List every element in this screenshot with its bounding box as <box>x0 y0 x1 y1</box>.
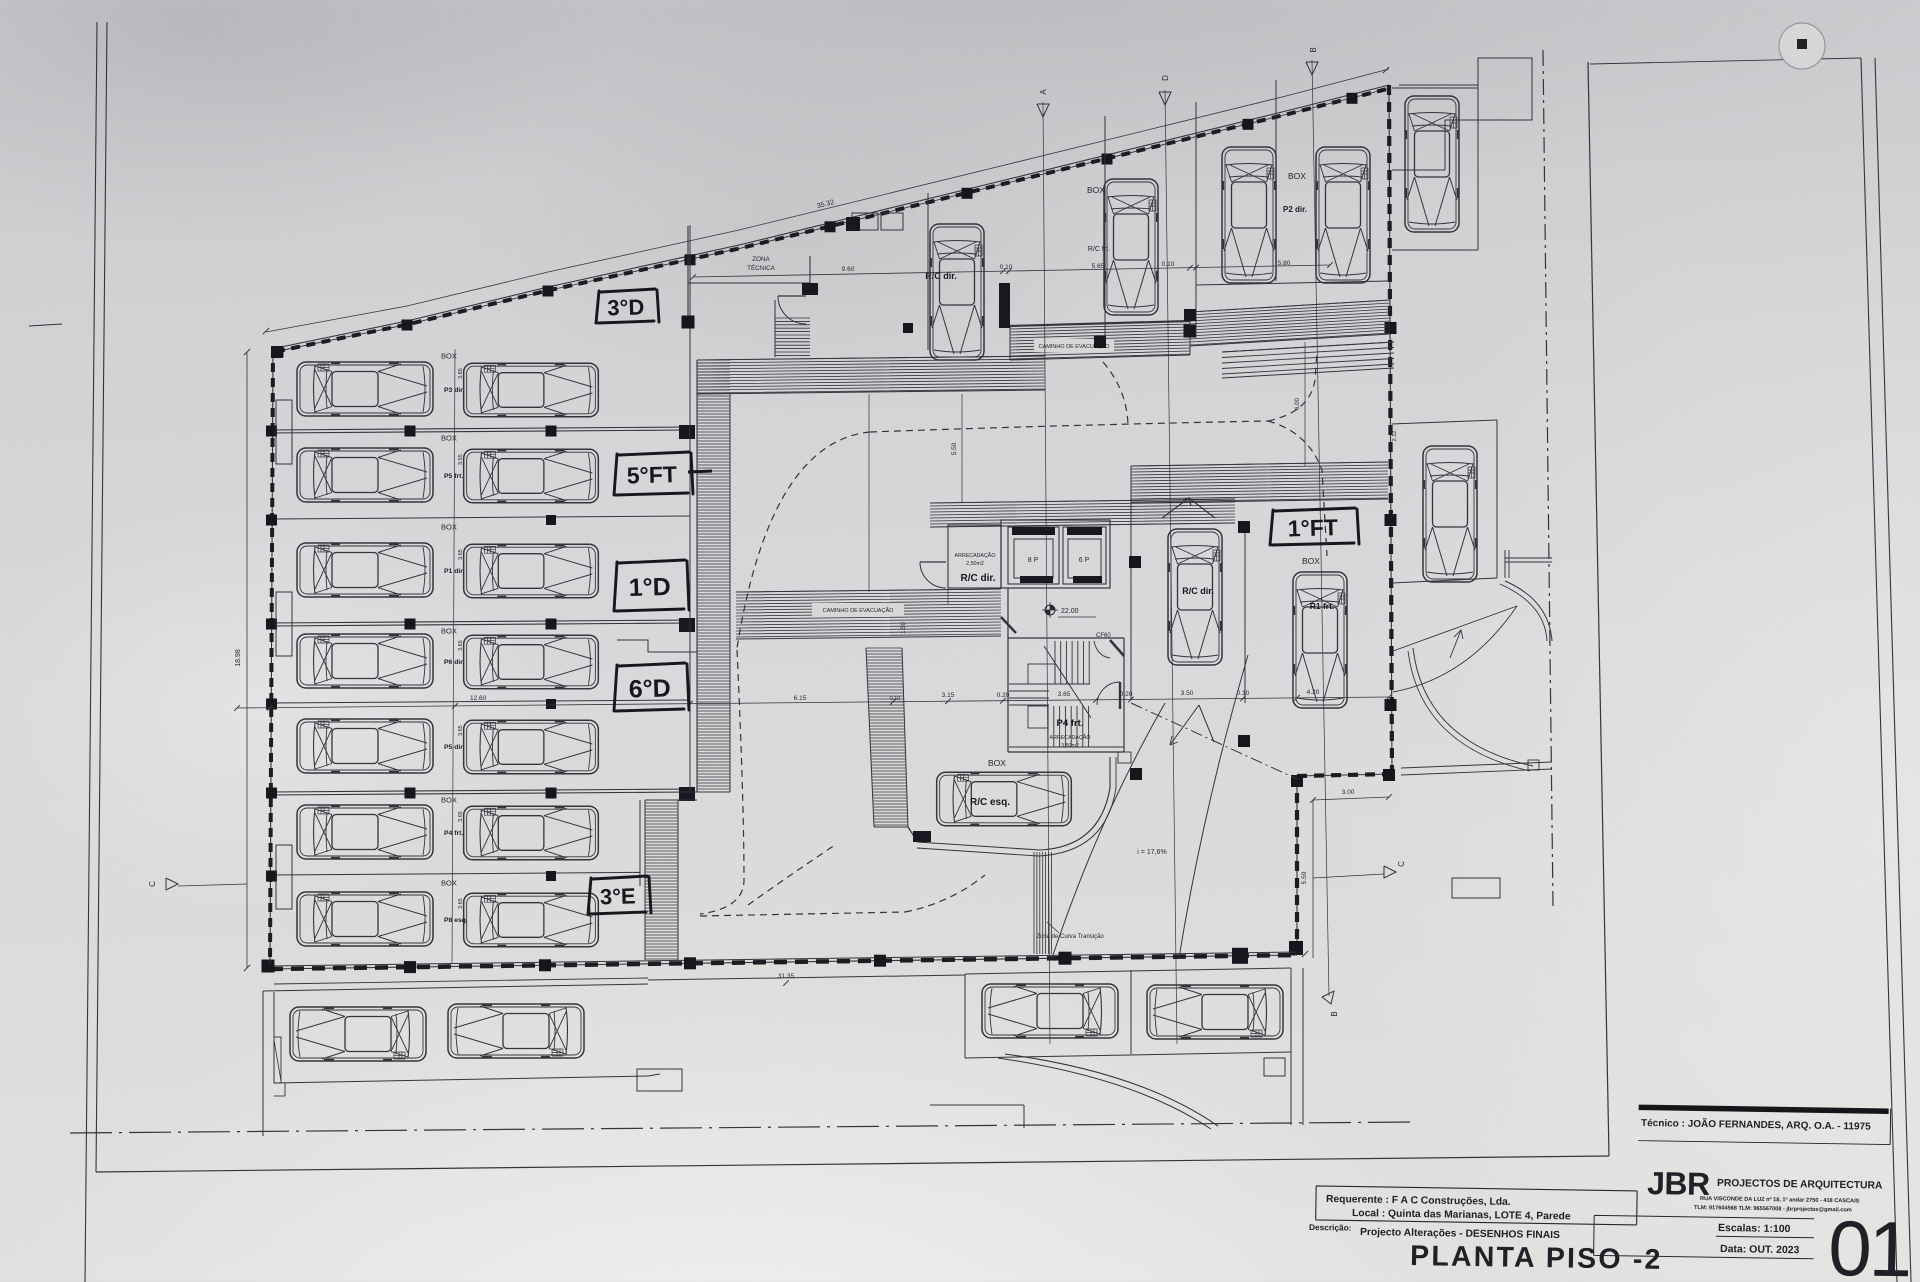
svg-text:B: B <box>1309 47 1318 52</box>
svg-text:2,50m2: 2,50m2 <box>966 561 984 567</box>
svg-text:R/C esq.: R/C esq. <box>970 797 1010 808</box>
svg-text:BOX: BOX <box>1087 185 1105 195</box>
svg-text:3.65: 3.65 <box>458 898 464 909</box>
svg-text:1°FT: 1°FT <box>1287 514 1338 541</box>
svg-text:R1 frt.: R1 frt. <box>1310 601 1335 611</box>
svg-text:ARRECADAÇÃO: ARRECADAÇÃO <box>1050 734 1091 741</box>
svg-text:i = 17,6%: i = 17,6% <box>1137 849 1166 856</box>
svg-text:BOX: BOX <box>441 523 457 532</box>
svg-text:22.00: 22.00 <box>1061 608 1079 615</box>
svg-text:CAMINHO DE EVACUAÇÃO: CAMINHO DE EVACUAÇÃO <box>823 607 895 614</box>
svg-text:5.50: 5.50 <box>951 442 958 455</box>
svg-text:6.00: 6.00 <box>1295 398 1301 410</box>
svg-text:3.65: 3.65 <box>458 725 464 736</box>
svg-text:8 P: 8 P <box>1028 557 1039 564</box>
svg-text:P4 frt.: P4 frt. <box>444 830 463 837</box>
svg-text:3.65: 3.65 <box>458 454 464 465</box>
svg-text:PLANTA PISO -2: PLANTA PISO -2 <box>1410 1240 1663 1276</box>
svg-text:31.35: 31.35 <box>778 973 795 980</box>
svg-text:P8 esq.: P8 esq. <box>444 917 468 924</box>
svg-text:3.65: 3.65 <box>458 640 464 651</box>
svg-text:A: A <box>1039 89 1048 95</box>
svg-text:BOX: BOX <box>1288 171 1306 181</box>
svg-text:Zona de Curva Transição: Zona de Curva Transição <box>1036 934 1104 940</box>
svg-text:Descrição:: Descrição: <box>1309 1222 1352 1233</box>
svg-text:TÉCNICA: TÉCNICA <box>747 263 775 272</box>
svg-text:5°FT: 5°FT <box>626 461 677 488</box>
svg-text:3.00: 3.00 <box>1342 789 1355 796</box>
svg-text:BOX: BOX <box>441 627 457 636</box>
svg-text:6°D: 6°D <box>628 674 671 703</box>
svg-text:Requerente : F A C Construçõe: Requerente : F A C Construções, Lda. <box>1326 1194 1511 1208</box>
svg-text:ZONA: ZONA <box>752 256 770 263</box>
svg-text:3.50: 3.50 <box>1181 690 1194 697</box>
svg-text:BOX: BOX <box>441 352 457 361</box>
svg-text:P5 dir.: P5 dir. <box>444 744 465 751</box>
svg-text:Local : Quinta das Marianas, L: Local : Quinta das Marianas, LOTE 4, Par… <box>1352 1208 1571 1222</box>
svg-text:P3 dir.: P3 dir. <box>444 387 465 394</box>
svg-text:0.10: 0.10 <box>1237 690 1250 697</box>
svg-text:D: D <box>1161 75 1170 81</box>
svg-text:P1 dir.: P1 dir. <box>444 568 465 575</box>
svg-text:P5 frt.: P5 frt. <box>444 473 463 480</box>
svg-text:Técnico : JOÃO FERNANDES, ARQ.: Técnico : JOÃO FERNANDES, ARQ. O.A. - 11… <box>1641 1116 1871 1133</box>
svg-text:Projecto Alterações - DESENHOS: Projecto Alterações - DESENHOS FINAIS <box>1360 1227 1560 1241</box>
svg-text:R/C dir.: R/C dir. <box>1182 586 1214 596</box>
svg-text:P2 dir.: P2 dir. <box>1283 205 1307 214</box>
svg-text:P6 dir.: P6 dir. <box>444 659 465 666</box>
svg-text:BOX: BOX <box>441 434 457 443</box>
svg-text:Data: OUT. 2023: Data: OUT. 2023 <box>1720 1243 1800 1256</box>
svg-text:6.15: 6.15 <box>794 695 807 702</box>
svg-text:PROJECTOS DE ARQUITECTURA: PROJECTOS DE ARQUITECTURA <box>1717 1178 1883 1192</box>
svg-text:2.12: 2.12 <box>1392 431 1398 442</box>
svg-text:0.10: 0.10 <box>1000 264 1013 271</box>
svg-text:3.65: 3.65 <box>458 549 464 560</box>
svg-text:ARRECADAÇÃO: ARRECADAÇÃO <box>955 552 996 559</box>
svg-text:0.20: 0.20 <box>997 692 1010 699</box>
svg-text:BOX: BOX <box>988 758 1006 768</box>
svg-text:5.50: 5.50 <box>1301 871 1308 884</box>
svg-text:3°D: 3°D <box>607 294 645 320</box>
svg-text:6 P: 6 P <box>1079 557 1090 564</box>
svg-text:9.60: 9.60 <box>842 266 855 273</box>
svg-text:3.15: 3.15 <box>942 692 955 699</box>
svg-text:3.65: 3.65 <box>1058 691 1071 698</box>
svg-text:B: B <box>1330 1011 1339 1016</box>
svg-text:CF60: CF60 <box>1096 633 1111 639</box>
svg-text:R/C dir.: R/C dir. <box>960 573 995 584</box>
svg-text:5.65: 5.65 <box>1092 263 1105 270</box>
svg-text:C: C <box>1397 861 1406 867</box>
svg-text:Escalas: 1:100: Escalas: 1:100 <box>1718 1222 1791 1235</box>
svg-text:C: C <box>148 881 157 887</box>
svg-text:R/C frt.: R/C frt. <box>1088 246 1110 253</box>
svg-text:3°E: 3°E <box>600 883 636 909</box>
svg-text:1°D: 1°D <box>628 573 671 602</box>
svg-text:BOX: BOX <box>441 796 457 805</box>
svg-text:0.10: 0.10 <box>1162 261 1175 268</box>
svg-text:0.20: 0.20 <box>1120 691 1133 698</box>
svg-text:1.50: 1.50 <box>901 622 907 634</box>
svg-text:18.98: 18.98 <box>235 649 242 667</box>
svg-text:BOX: BOX <box>1302 556 1320 566</box>
svg-text:35.32: 35.32 <box>816 199 835 210</box>
svg-text:BOX: BOX <box>441 879 457 888</box>
svg-text:3.65: 3.65 <box>458 368 464 379</box>
svg-text:P4 frt.: P4 frt. <box>1057 718 1084 729</box>
svg-text:01: 01 <box>1828 1204 1910 1282</box>
svg-text:12.60: 12.60 <box>470 695 487 702</box>
svg-text:5.80: 5.80 <box>1278 260 1291 267</box>
svg-text:3.65: 3.65 <box>458 811 464 822</box>
svg-text:3,50m2: 3,50m2 <box>1061 743 1079 749</box>
